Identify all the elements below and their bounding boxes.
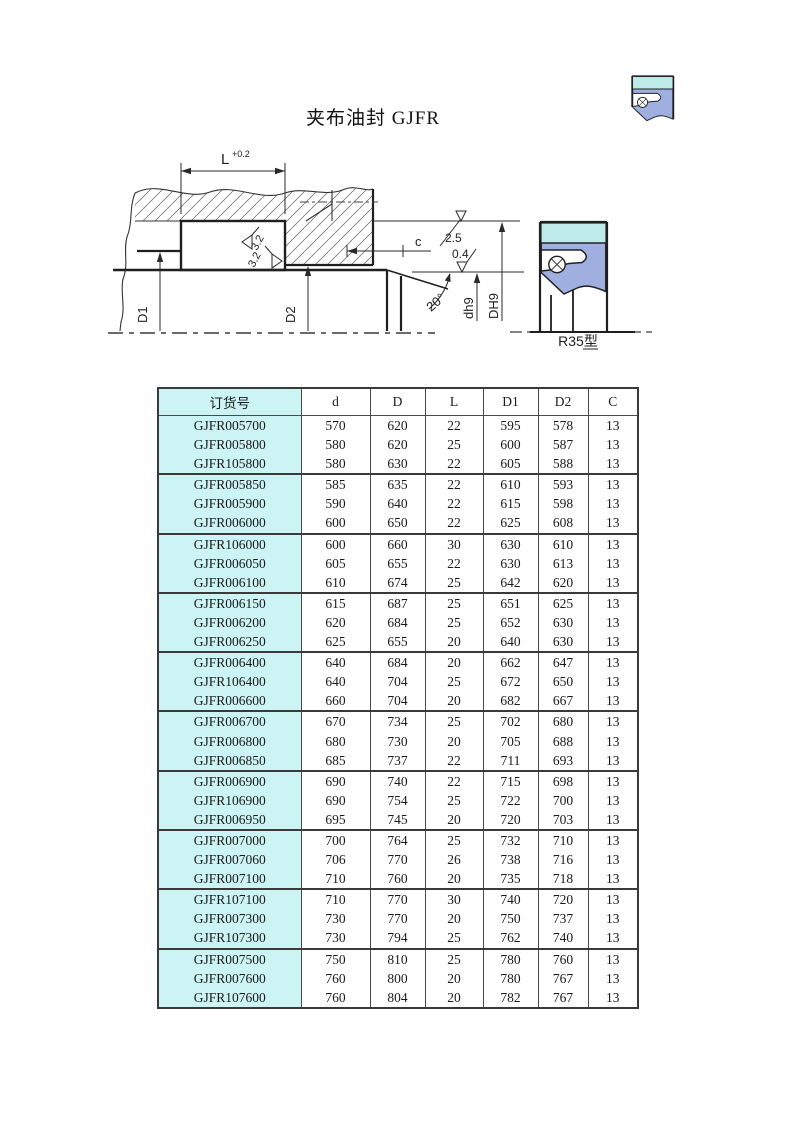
surface-finish-face: 2.5: [373, 211, 520, 246]
value-cell: 625: [538, 593, 588, 613]
value-cell: 620: [301, 613, 370, 632]
order-number-cell: GJFR007060: [158, 850, 301, 869]
value-cell: 578: [538, 416, 588, 436]
value-cell: 610: [483, 474, 538, 494]
value-cell: 695: [301, 810, 370, 830]
value-cell: 620: [370, 435, 425, 454]
value-cell: 655: [370, 554, 425, 573]
value-cell: 760: [301, 988, 370, 1008]
value-cell: 13: [588, 534, 638, 554]
order-number-cell: GJFR006000: [158, 513, 301, 533]
value-cell: 13: [588, 830, 638, 850]
value-cell: 20: [425, 969, 483, 988]
order-number-cell: GJFR007500: [158, 949, 301, 969]
table-row: GJFR0067006707342570268013: [158, 711, 638, 731]
value-cell: 738: [483, 850, 538, 869]
value-cell: 711: [483, 751, 538, 771]
value-cell: 688: [538, 732, 588, 751]
value-cell: 13: [588, 652, 638, 672]
table-row: GJFR0069006907402271569813: [158, 771, 638, 791]
table-row: GJFR0066006607042068266713: [158, 691, 638, 711]
value-cell: 660: [301, 691, 370, 711]
order-number-cell: GJFR107300: [158, 928, 301, 948]
table-row: GJFR1064006407042567265013: [158, 672, 638, 691]
order-number-cell: GJFR106400: [158, 672, 301, 691]
value-cell: 760: [538, 949, 588, 969]
value-cell: 704: [370, 672, 425, 691]
order-number-cell: GJFR006250: [158, 632, 301, 652]
value-cell: 25: [425, 593, 483, 613]
value-cell: 651: [483, 593, 538, 613]
value-cell: 625: [483, 513, 538, 533]
value-cell: 580: [301, 454, 370, 474]
order-number-cell: GJFR107600: [158, 988, 301, 1008]
table-row: GJFR0064006406842066264713: [158, 652, 638, 672]
order-number-cell: GJFR006800: [158, 732, 301, 751]
value-cell: 25: [425, 830, 483, 850]
order-number-cell: GJFR007300: [158, 909, 301, 928]
value-cell: 635: [370, 474, 425, 494]
value-cell: 732: [483, 830, 538, 850]
value-cell: 25: [425, 435, 483, 454]
value-cell: 13: [588, 969, 638, 988]
order-number-cell: GJFR007100: [158, 869, 301, 889]
order-number-cell: GJFR006400: [158, 652, 301, 672]
value-cell: 770: [370, 889, 425, 909]
value-cell: 13: [588, 494, 638, 513]
value-cell: 605: [483, 454, 538, 474]
value-cell: 25: [425, 711, 483, 731]
table-row: GJFR1069006907542572270013: [158, 791, 638, 810]
column-header-D: D: [370, 388, 425, 416]
value-cell: 730: [301, 928, 370, 948]
table-row: GJFR0058005806202560058713: [158, 435, 638, 454]
surface-finish-groove-left: 3.2: [242, 227, 267, 252]
dimension-D1: D1: [135, 252, 163, 331]
value-cell: 20: [425, 691, 483, 711]
value-cell: 716: [538, 850, 588, 869]
value-cell: 13: [588, 613, 638, 632]
value-cell: 642: [483, 573, 538, 593]
value-cell: 25: [425, 573, 483, 593]
value-cell: 30: [425, 889, 483, 909]
value-cell: 13: [588, 732, 638, 751]
value-cell: 22: [425, 751, 483, 771]
value-cell: 750: [301, 949, 370, 969]
table-row: GJFR0061006106742564262013: [158, 573, 638, 593]
value-cell: 13: [588, 672, 638, 691]
dimension-dh9: dh9: [461, 273, 480, 321]
value-cell: 650: [538, 672, 588, 691]
value-cell: 13: [588, 850, 638, 869]
value-cell: 670: [301, 711, 370, 731]
order-number-cell: GJFR005700: [158, 416, 301, 436]
value-cell: 20: [425, 988, 483, 1008]
column-header-D1: D1: [483, 388, 538, 416]
value-cell: 810: [370, 949, 425, 969]
value-cell: 13: [588, 988, 638, 1008]
value-cell: 800: [370, 969, 425, 988]
dimension-label-L-tolerance: +0.2: [232, 149, 250, 159]
value-cell: 737: [370, 751, 425, 771]
value-cell: 703: [538, 810, 588, 830]
surface-finish-label: 2.5: [445, 231, 462, 245]
value-cell: 22: [425, 554, 483, 573]
value-cell: 580: [301, 435, 370, 454]
value-cell: 13: [588, 791, 638, 810]
order-number-cell: GJFR006200: [158, 613, 301, 632]
value-cell: 698: [538, 771, 588, 791]
column-header-order-number: 订货号: [158, 388, 301, 416]
value-cell: 720: [538, 889, 588, 909]
value-cell: 705: [483, 732, 538, 751]
dimension-label-D1: D1: [135, 306, 150, 323]
value-cell: 22: [425, 454, 483, 474]
value-cell: 608: [538, 513, 588, 533]
value-cell: 722: [483, 791, 538, 810]
table-row: GJFR0068006807302070568813: [158, 732, 638, 751]
value-cell: 740: [483, 889, 538, 909]
table-row: GJFR0060506056552263061313: [158, 554, 638, 573]
value-cell: 595: [483, 416, 538, 436]
value-cell: 762: [483, 928, 538, 948]
value-cell: 600: [483, 435, 538, 454]
order-number-cell: GJFR007000: [158, 830, 301, 850]
surface-finish-groove-bottom: 3.2: [246, 246, 282, 269]
order-number-cell: GJFR006700: [158, 711, 301, 731]
value-cell: 720: [483, 810, 538, 830]
table-row: GJFR0073007307702075073713: [158, 909, 638, 928]
value-cell: 20: [425, 632, 483, 652]
value-cell: 613: [538, 554, 588, 573]
value-cell: 22: [425, 416, 483, 436]
value-cell: 13: [588, 810, 638, 830]
value-cell: 13: [588, 554, 638, 573]
value-cell: 13: [588, 632, 638, 652]
seal-profile-icon: [632, 76, 674, 121]
value-cell: 770: [370, 909, 425, 928]
table-row: GJFR0060006006502262560813: [158, 513, 638, 533]
value-cell: 570: [301, 416, 370, 436]
seal-type-label: R35型: [558, 333, 598, 349]
value-cell: 794: [370, 928, 425, 948]
table-row: GJFR1071007107703074072013: [158, 889, 638, 909]
dimension-label-dh9: dh9: [461, 297, 476, 319]
value-cell: 660: [370, 534, 425, 554]
value-cell: 770: [370, 850, 425, 869]
value-cell: 25: [425, 949, 483, 969]
break-line: [120, 193, 135, 331]
value-cell: 20: [425, 732, 483, 751]
value-cell: 737: [538, 909, 588, 928]
table-row: GJFR1076007608042078276713: [158, 988, 638, 1008]
value-cell: 20: [425, 909, 483, 928]
value-cell: 620: [370, 416, 425, 436]
value-cell: 13: [588, 474, 638, 494]
dimension-label-angle: 20°: [423, 290, 448, 314]
value-cell: 680: [301, 732, 370, 751]
value-cell: 598: [538, 494, 588, 513]
value-cell: 740: [370, 771, 425, 791]
table-row: GJFR0061506156872565162513: [158, 593, 638, 613]
document-page: 夹布油封 GJFR: [0, 0, 793, 1122]
value-cell: 22: [425, 771, 483, 791]
dimension-D2: D2: [283, 266, 311, 331]
table-row: GJFR0069506957452072070313: [158, 810, 638, 830]
table-row: GJFR0070607067702673871613: [158, 850, 638, 869]
value-cell: 22: [425, 474, 483, 494]
order-number-cell: GJFR006150: [158, 593, 301, 613]
value-cell: 13: [588, 869, 638, 889]
value-cell: 25: [425, 928, 483, 948]
value-cell: 735: [483, 869, 538, 889]
value-cell: 13: [588, 889, 638, 909]
column-header-D2: D2: [538, 388, 588, 416]
surface-finish-label: 3.2: [246, 250, 264, 269]
order-number-cell: GJFR005800: [158, 435, 301, 454]
value-cell: 625: [301, 632, 370, 652]
value-cell: 610: [538, 534, 588, 554]
value-cell: 710: [538, 830, 588, 850]
value-cell: 13: [588, 593, 638, 613]
value-cell: 700: [538, 791, 588, 810]
value-cell: 764: [370, 830, 425, 850]
value-cell: 672: [483, 672, 538, 691]
value-cell: 630: [538, 632, 588, 652]
value-cell: 590: [301, 494, 370, 513]
value-cell: 702: [483, 711, 538, 731]
order-number-cell: GJFR006900: [158, 771, 301, 791]
value-cell: 700: [301, 830, 370, 850]
value-cell: 647: [538, 652, 588, 672]
dimension-label-c: c: [415, 234, 422, 249]
value-cell: 718: [538, 869, 588, 889]
value-cell: 13: [588, 573, 638, 593]
order-number-cell: GJFR106900: [158, 791, 301, 810]
surface-finish-label: 0.4: [452, 247, 469, 261]
order-number-cell: GJFR107100: [158, 889, 301, 909]
value-cell: 650: [370, 513, 425, 533]
value-cell: 630: [483, 534, 538, 554]
value-cell: 13: [588, 909, 638, 928]
value-cell: 630: [538, 613, 588, 632]
value-cell: 710: [301, 889, 370, 909]
value-cell: 640: [483, 632, 538, 652]
table-row: GJFR0071007107602073571813: [158, 869, 638, 889]
value-cell: 684: [370, 652, 425, 672]
value-cell: 610: [301, 573, 370, 593]
value-cell: 652: [483, 613, 538, 632]
order-number-cell: GJFR007600: [158, 969, 301, 988]
value-cell: 745: [370, 810, 425, 830]
table-row: GJFR0076007608002078076713: [158, 969, 638, 988]
value-cell: 20: [425, 652, 483, 672]
value-cell: 615: [483, 494, 538, 513]
table-row: GJFR0062506256552064063013: [158, 632, 638, 652]
table-row: GJFR1060006006603063061013: [158, 534, 638, 554]
value-cell: 730: [370, 732, 425, 751]
value-cell: 25: [425, 613, 483, 632]
value-cell: 684: [370, 613, 425, 632]
table-row: GJFR0062006206842565263013: [158, 613, 638, 632]
technical-drawing: L +0.2 3.2 3.2 c 2.5 0.4: [100, 60, 700, 370]
value-cell: 690: [301, 771, 370, 791]
value-cell: 767: [538, 988, 588, 1008]
value-cell: 615: [301, 593, 370, 613]
value-cell: 640: [370, 494, 425, 513]
table-row: GJFR0059005906402261559813: [158, 494, 638, 513]
order-number-cell: GJFR006950: [158, 810, 301, 830]
table-row: GJFR0070007007642573271013: [158, 830, 638, 850]
order-number-cell: GJFR006050: [158, 554, 301, 573]
column-header-d: d: [301, 388, 370, 416]
value-cell: 13: [588, 435, 638, 454]
order-number-cell: GJFR105800: [158, 454, 301, 474]
value-cell: 655: [370, 632, 425, 652]
value-cell: 13: [588, 751, 638, 771]
value-cell: 13: [588, 691, 638, 711]
value-cell: 25: [425, 672, 483, 691]
order-number-cell: GJFR006600: [158, 691, 301, 711]
value-cell: 585: [301, 474, 370, 494]
value-cell: 588: [538, 454, 588, 474]
table-row: GJFR1073007307942576274013: [158, 928, 638, 948]
value-cell: 620: [538, 573, 588, 593]
order-number-cell: GJFR006100: [158, 573, 301, 593]
value-cell: 600: [301, 513, 370, 533]
value-cell: 20: [425, 869, 483, 889]
value-cell: 710: [301, 869, 370, 889]
value-cell: 630: [483, 554, 538, 573]
value-cell: 734: [370, 711, 425, 731]
value-cell: 630: [370, 454, 425, 474]
value-cell: 804: [370, 988, 425, 1008]
value-cell: 782: [483, 988, 538, 1008]
value-cell: 680: [538, 711, 588, 731]
table-row: GJFR0075007508102578076013: [158, 949, 638, 969]
column-header-L: L: [425, 388, 483, 416]
value-cell: 593: [538, 474, 588, 494]
value-cell: 767: [538, 969, 588, 988]
value-cell: 25: [425, 791, 483, 810]
value-cell: 22: [425, 513, 483, 533]
value-cell: 687: [370, 593, 425, 613]
seal-profile-r35: R35型: [540, 222, 607, 349]
value-cell: 605: [301, 554, 370, 573]
value-cell: 30: [425, 534, 483, 554]
value-cell: 706: [301, 850, 370, 869]
column-header-C: C: [588, 388, 638, 416]
value-cell: 690: [301, 791, 370, 810]
value-cell: 750: [483, 909, 538, 928]
order-number-cell: GJFR106000: [158, 534, 301, 554]
value-cell: 13: [588, 513, 638, 533]
value-cell: 760: [370, 869, 425, 889]
value-cell: 13: [588, 711, 638, 731]
value-cell: 685: [301, 751, 370, 771]
seal-groove: [181, 221, 285, 270]
table-row: GJFR1058005806302260558813: [158, 454, 638, 474]
value-cell: 26: [425, 850, 483, 869]
value-cell: 667: [538, 691, 588, 711]
value-cell: 740: [538, 928, 588, 948]
table-row: GJFR0057005706202259557813: [158, 416, 638, 436]
value-cell: 13: [588, 949, 638, 969]
order-number-cell: GJFR005850: [158, 474, 301, 494]
order-number-cell: GJFR005900: [158, 494, 301, 513]
value-cell: 587: [538, 435, 588, 454]
dimension-label-DH9: DH9: [486, 293, 501, 319]
value-cell: 640: [301, 672, 370, 691]
value-cell: 674: [370, 573, 425, 593]
value-cell: 760: [301, 969, 370, 988]
value-cell: 754: [370, 791, 425, 810]
value-cell: 730: [301, 909, 370, 928]
table-row: GJFR0068506857372271169313: [158, 751, 638, 771]
value-cell: 662: [483, 652, 538, 672]
header-row: 订货号 d D L D1 D2 C: [158, 388, 638, 416]
dimension-label-D2: D2: [283, 306, 298, 323]
value-cell: 780: [483, 969, 538, 988]
value-cell: 715: [483, 771, 538, 791]
value-cell: 780: [483, 949, 538, 969]
dimension-chamfer-angle: 20°: [423, 273, 450, 314]
value-cell: 704: [370, 691, 425, 711]
shaft-lines: [113, 251, 448, 331]
value-cell: 13: [588, 771, 638, 791]
table-row: GJFR0058505856352261059313: [158, 474, 638, 494]
spec-table-body: GJFR0057005706202259557813GJFR0058005806…: [158, 416, 638, 1008]
dimension-label-L: L: [221, 151, 229, 168]
order-number-cell: GJFR006850: [158, 751, 301, 771]
spec-table: 订货号 d D L D1 D2 C GJFR005700570620225955…: [157, 387, 639, 1009]
value-cell: 22: [425, 494, 483, 513]
value-cell: 640: [301, 652, 370, 672]
value-cell: 600: [301, 534, 370, 554]
value-cell: 13: [588, 416, 638, 436]
value-cell: 13: [588, 928, 638, 948]
value-cell: 13: [588, 454, 638, 474]
value-cell: 693: [538, 751, 588, 771]
value-cell: 682: [483, 691, 538, 711]
value-cell: 20: [425, 810, 483, 830]
